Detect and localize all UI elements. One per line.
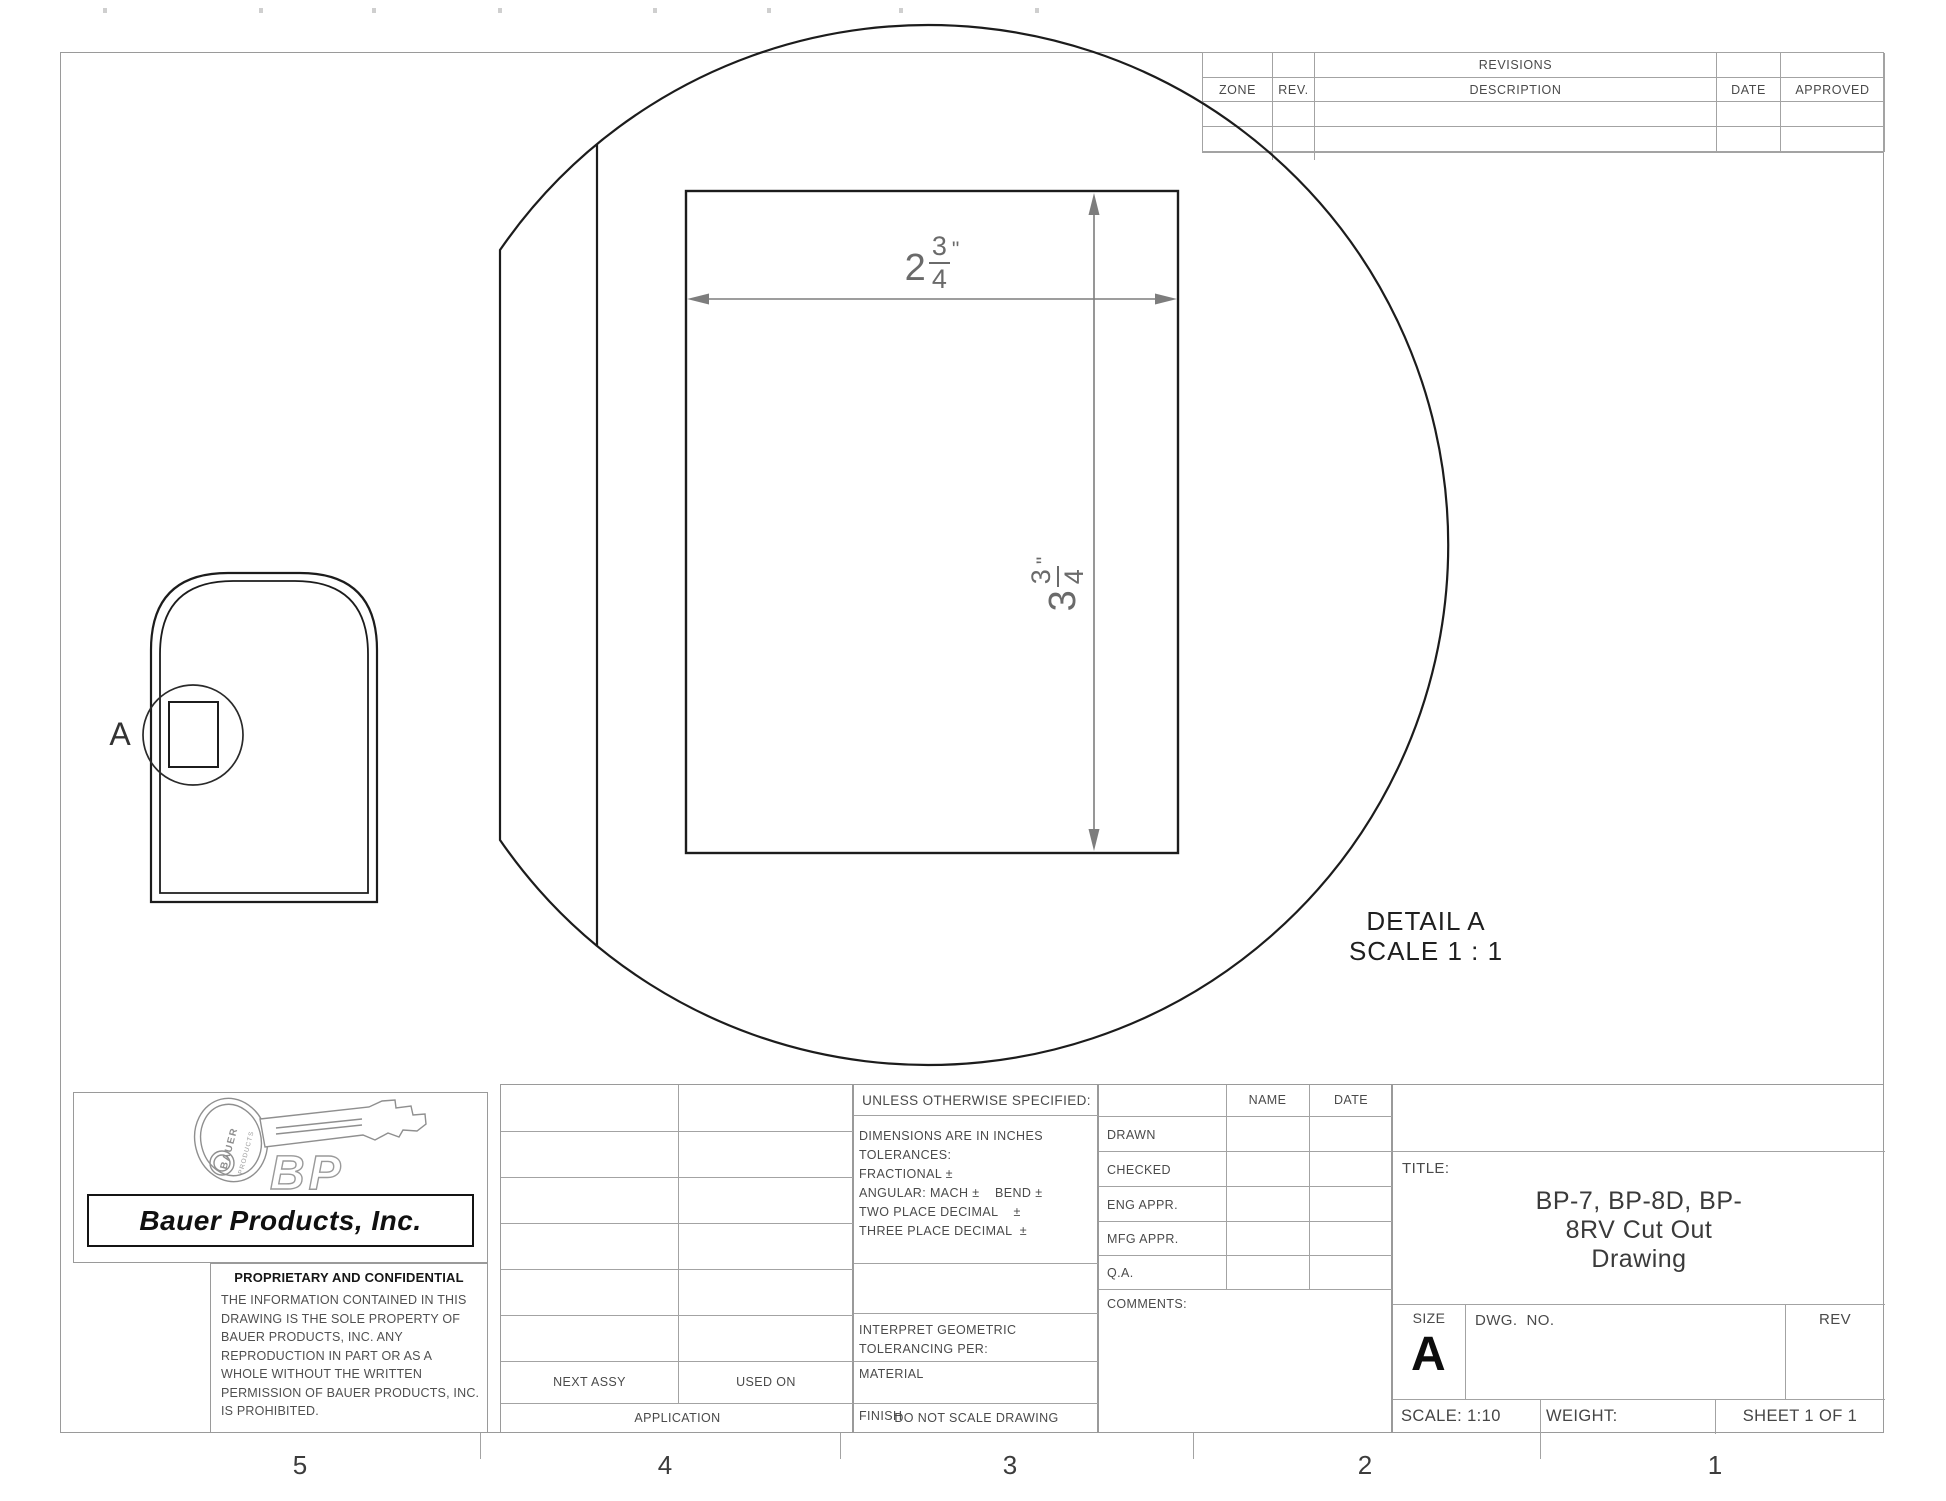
signoff-row-eng-appr: ENG APPR. <box>1107 1196 1178 1215</box>
tolerance-line: TOLERANCES: <box>859 1146 1097 1165</box>
inch-mark: " <box>1033 557 1057 564</box>
detail-caption: DETAIL A SCALE 1 : 1 <box>1292 906 1560 966</box>
key-label-bottom: PRODUCTS <box>237 1130 255 1175</box>
width-dimension-lines <box>687 294 1177 305</box>
tolerance-line: THREE PLACE DECIMAL ± <box>859 1222 1097 1241</box>
company-name: Bauer Products, Inc. <box>139 1205 421 1237</box>
detail-marker-label: A <box>102 714 138 754</box>
weight-cell: WEIGHT: <box>1546 1407 1618 1426</box>
zone-tick <box>1193 1433 1194 1459</box>
application-table: NEXT ASSY USED ON APPLICATION <box>500 1084 853 1433</box>
signoff-row-qa: Q.A. <box>1107 1264 1134 1283</box>
drawing-title-line: 8RV Cut Out <box>1439 1216 1839 1245</box>
signoff-row-drawn: DRAWN <box>1107 1126 1156 1145</box>
zone-tick <box>1540 1433 1541 1459</box>
comments-cell: COMMENTS: <box>1107 1295 1187 1314</box>
tolerance-block: UNLESS OTHERWISE SPECIFIED: DIMENSIONS A… <box>853 1084 1098 1433</box>
zone-tick <box>840 1433 841 1459</box>
application-cell: APPLICATION <box>501 1403 854 1433</box>
detail-scale: SCALE 1 : 1 <box>1292 936 1560 966</box>
next-assy-cell: NEXT ASSY <box>501 1361 678 1403</box>
drawing-title-line: BP-7, BP-8D, BP- <box>1439 1187 1839 1216</box>
signoff-row-mfg-appr: MFG APPR. <box>1107 1230 1179 1249</box>
proprietary-body: THE INFORMATION CONTAINED IN THIS DRAWIN… <box>211 1285 487 1421</box>
zone-label: 5 <box>278 1450 322 1481</box>
height-dimension: 3 3 4 " <box>1027 514 1089 654</box>
key-logo: BAUER PRODUCTS BP <box>74 1093 489 1195</box>
signoff-col-date: DATE <box>1309 1085 1393 1116</box>
rev-label: REV <box>1785 1308 1885 1330</box>
size-value: A <box>1411 1327 1446 1382</box>
zone-label: 3 <box>988 1450 1032 1481</box>
zone-label: 4 <box>643 1450 687 1481</box>
width-fraction: 3 4 <box>929 233 950 293</box>
interpret-cell: INTERPRET GEOMETRIC TOLERANCING PER: <box>859 1321 1039 1359</box>
tolerance-line: ANGULAR: MACH ± BEND ± <box>859 1184 1097 1203</box>
title-block: TITLE: BP-7, BP-8D, BP- 8RV Cut Out Draw… <box>1392 1084 1884 1433</box>
height-whole: 3 <box>1044 590 1082 611</box>
drawing-title-line: Drawing <box>1439 1245 1839 1274</box>
drawing-sheet: { "revisions": { "title": "REVISIONS", "… <box>0 0 1946 1501</box>
title-label: TITLE: <box>1402 1160 1449 1177</box>
door-front-view <box>143 573 377 902</box>
scale-cell: SCALE: 1:10 <box>1401 1407 1501 1426</box>
tolerance-line: TWO PLACE DECIMAL ± <box>859 1203 1097 1222</box>
zone-label: 2 <box>1343 1450 1387 1481</box>
cutout-rectangle-small <box>169 702 218 767</box>
inch-mark: " <box>952 238 959 262</box>
drawing-title: BP-7, BP-8D, BP- 8RV Cut Out Drawing <box>1439 1187 1839 1274</box>
width-dimension: 2 3 4 " <box>862 232 1002 294</box>
zone-label: 1 <box>1693 1450 1737 1481</box>
sheet-cell: SHEET 1 OF 1 <box>1715 1399 1885 1434</box>
proprietary-heading: PROPRIETARY AND CONFIDENTIAL <box>211 1264 487 1285</box>
height-fraction: 3 4 <box>1028 566 1088 587</box>
material-cell: MATERIAL <box>859 1365 1059 1384</box>
height-dimension-lines <box>1089 193 1100 851</box>
zone-tick <box>480 1433 481 1459</box>
company-name-box: Bauer Products, Inc. <box>87 1194 474 1247</box>
used-on-cell: USED ON <box>678 1361 854 1403</box>
key-label-top: BAUER <box>219 1126 241 1170</box>
proprietary-block: PROPRIETARY AND CONFIDENTIAL THE INFORMA… <box>210 1263 488 1433</box>
tolerance-notes: DIMENSIONS ARE IN INCHES TOLERANCES: FRA… <box>859 1127 1097 1241</box>
detail-title: DETAIL A <box>1292 906 1560 936</box>
size-label: SIZE <box>1393 1308 1465 1328</box>
signoff-col-name: NAME <box>1226 1085 1309 1116</box>
logo-block: BAUER PRODUCTS BP Bauer Products, Inc. <box>73 1092 488 1263</box>
tolerance-line: FRACTIONAL ± <box>859 1165 1097 1184</box>
signoff-table: NAME DATE DRAWN CHECKED ENG APPR. MFG AP… <box>1098 1084 1392 1433</box>
do-not-scale-cell: DO NOT SCALE DRAWING <box>854 1403 1099 1434</box>
width-whole: 2 <box>905 249 926 287</box>
tolerance-heading: UNLESS OTHERWISE SPECIFIED: <box>854 1085 1099 1115</box>
signoff-row-checked: CHECKED <box>1107 1161 1171 1180</box>
bp-monogram: BP <box>270 1147 345 1195</box>
tolerance-line: DIMENSIONS ARE IN INCHES <box>859 1127 1097 1146</box>
dwg-no-label: DWG. NO. <box>1475 1312 1554 1329</box>
